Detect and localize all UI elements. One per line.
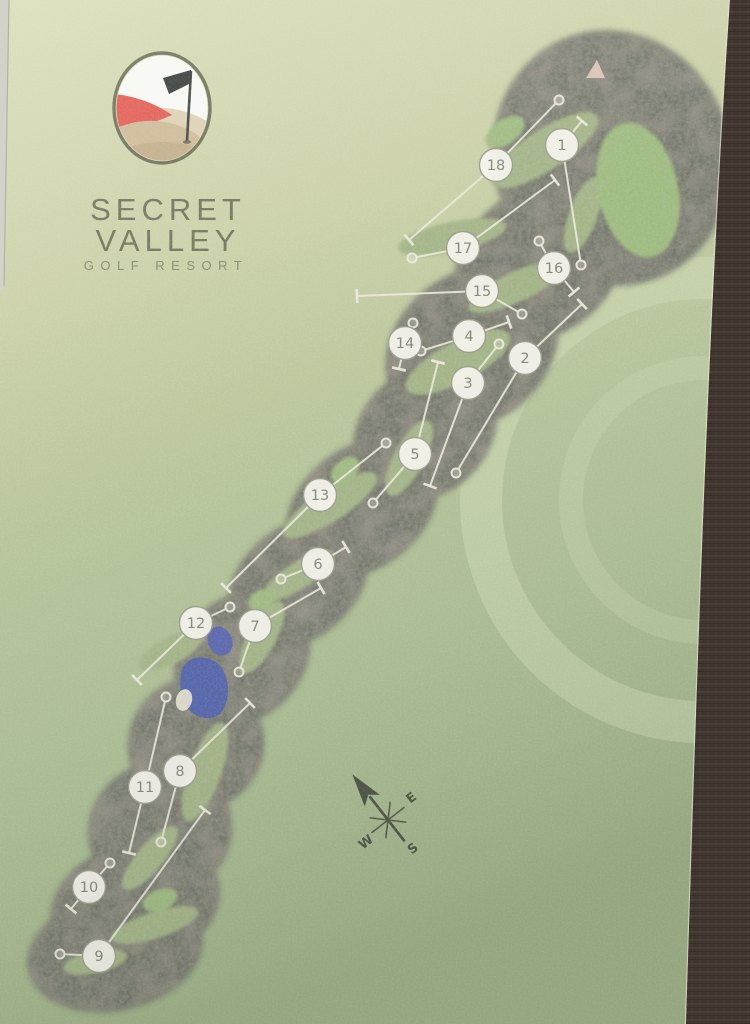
secret-valley-course-map: 123456789101112131415161718 E W S	[0, 0, 750, 1024]
poster: 123456789101112131415161718 E W S	[0, 0, 750, 1024]
photo-lighting	[0, 0, 750, 1024]
course-map-photo: 123456789101112131415161718 E W S	[0, 0, 750, 1024]
